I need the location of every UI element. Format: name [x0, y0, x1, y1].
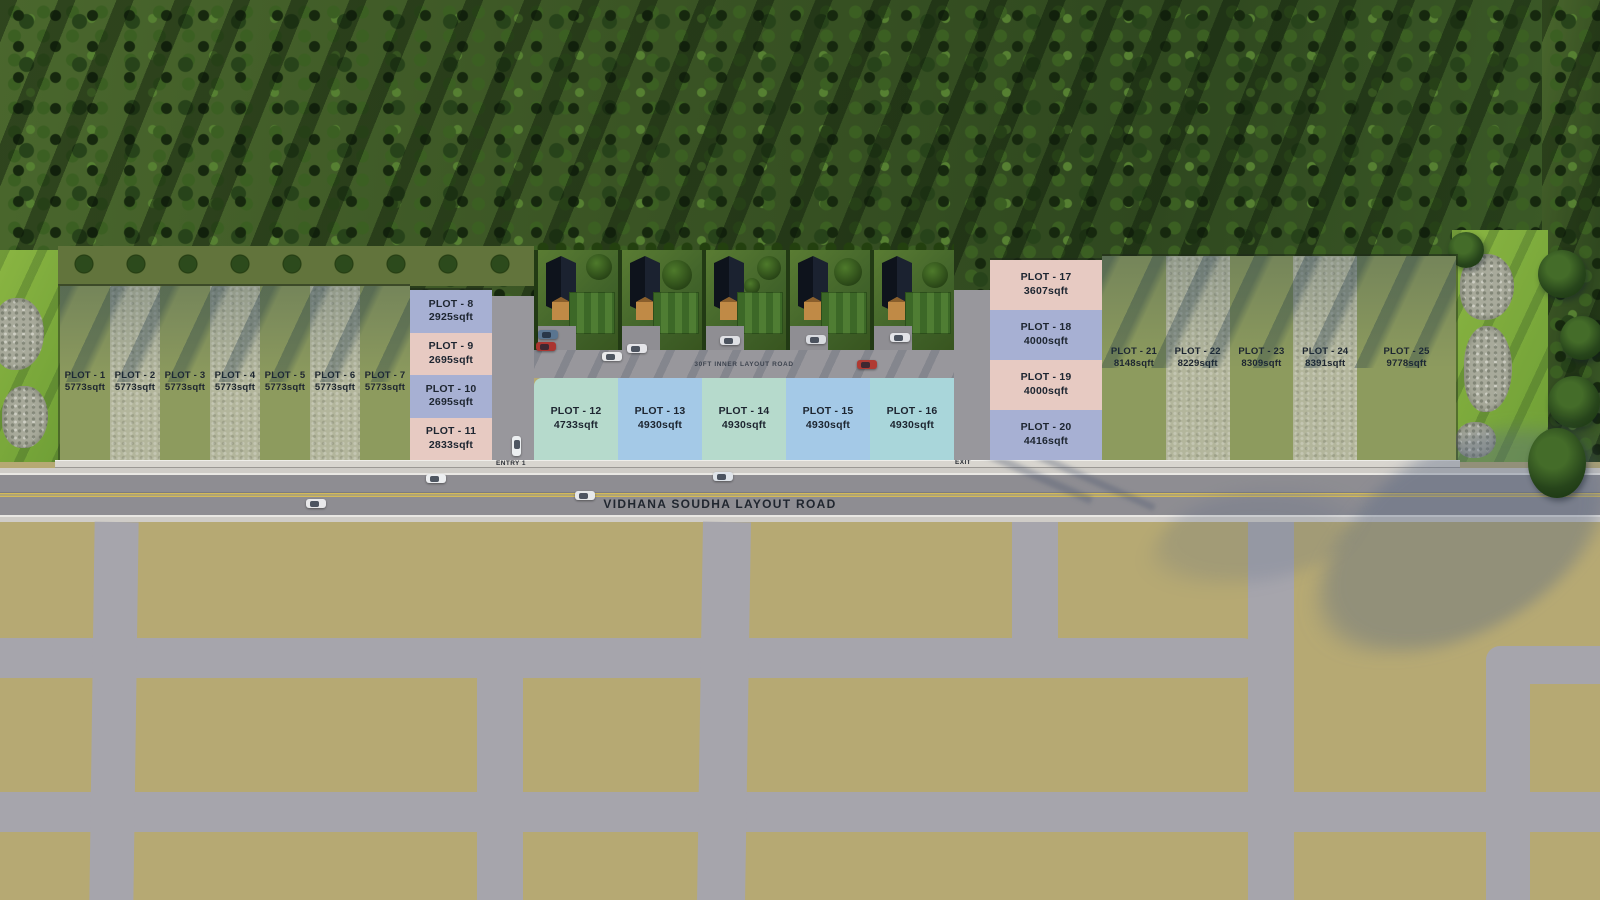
car [538, 330, 558, 339]
plot-4: PLOT - 45773sqft [210, 286, 260, 460]
plot-22: PLOT - 228229sqft [1166, 256, 1230, 460]
plots-1-7-block: PLOT - 15773sqft PLOT - 25773sqft PLOT -… [58, 284, 410, 460]
tree [757, 256, 781, 280]
tree [1538, 250, 1586, 298]
car [536, 342, 556, 351]
car [512, 436, 521, 456]
car [713, 472, 733, 481]
plot-9: PLOT - 92695sqft [410, 333, 492, 376]
meadow-left [0, 250, 60, 462]
tree [834, 258, 862, 286]
plot-24: PLOT - 248391sqft [1293, 256, 1357, 460]
entry-label: ENTRY 1 [496, 460, 526, 467]
inner-layout-road: 30FT INNER LAYOUT ROAD [534, 350, 954, 378]
car [806, 335, 826, 344]
plot-16: PLOT - 164930sqft [870, 378, 954, 460]
plot-18: PLOT - 184000sqft [990, 310, 1102, 360]
main-road-label: VIDHANA SOUDHA LAYOUT ROAD [560, 497, 880, 511]
car [426, 474, 446, 483]
tree [662, 260, 692, 290]
plot-7: PLOT - 75773sqft [360, 286, 410, 460]
plot-1: PLOT - 15773sqft [60, 286, 110, 460]
street-vertical [477, 676, 523, 900]
plot-8: PLOT - 82925sqft [410, 290, 492, 333]
plot-2: PLOT - 25773sqft [110, 286, 160, 460]
plot-10: PLOT - 102695sqft [410, 375, 492, 418]
sidewalk [55, 460, 1460, 468]
exit-road [954, 290, 990, 460]
house-lot [870, 250, 954, 350]
plots-12-16-block: PLOT - 124733sqft PLOT - 134930sqft PLOT… [534, 378, 954, 460]
plot-20: PLOT - 204416sqft [990, 410, 1102, 460]
car [575, 491, 595, 500]
plot-11: PLOT - 112833sqft [410, 418, 492, 461]
street-vertical [1486, 646, 1530, 900]
tree [922, 262, 948, 288]
plot-12: PLOT - 124733sqft [534, 378, 618, 460]
house-lot [786, 250, 870, 350]
plot-6: PLOT - 65773sqft [310, 286, 360, 460]
plot-19: PLOT - 194000sqft [990, 360, 1102, 410]
gravel-patch [2, 386, 48, 448]
site-layout-render: VIDHANA SOUDHA LAYOUT ROAD ENTRY 1 EXIT … [0, 0, 1600, 900]
street-horizontal [1522, 646, 1600, 684]
plot-14: PLOT - 144930sqft [702, 378, 786, 460]
street-vertical [89, 522, 138, 900]
exit-label: EXIT [955, 459, 971, 466]
tree [1548, 376, 1600, 428]
plot-25: PLOT - 259778sqft [1357, 256, 1456, 460]
tree [1560, 316, 1600, 360]
plot-3: PLOT - 35773sqft [160, 286, 210, 460]
street-horizontal [0, 638, 1262, 678]
plot-13: PLOT - 134930sqft [618, 378, 702, 460]
plot-21: PLOT - 218148sqft [1102, 256, 1166, 460]
plot-15: PLOT - 154930sqft [786, 378, 870, 460]
house-lot [702, 250, 786, 350]
tree [1528, 428, 1586, 498]
inner-road-label: 30FT INNER LAYOUT ROAD [694, 361, 793, 368]
plots-17-20-block: PLOT - 173607sqft PLOT - 184000sqft PLOT… [990, 258, 1102, 460]
car [890, 333, 910, 342]
plot-17: PLOT - 173607sqft [990, 260, 1102, 310]
gravel-patch [0, 298, 44, 370]
plots-8-11-block: PLOT - 82925sqft PLOT - 92695sqft PLOT -… [410, 288, 492, 460]
plots-21-25-block: PLOT - 218148sqft PLOT - 228229sqft PLOT… [1102, 254, 1458, 460]
street-vertical [697, 522, 751, 900]
plot-23: PLOT - 238309sqft [1230, 256, 1294, 460]
hedge-row [58, 246, 534, 286]
plot-5: PLOT - 55773sqft [260, 286, 310, 460]
car [627, 344, 647, 353]
car [306, 499, 326, 508]
car [720, 336, 740, 345]
house-lot [618, 250, 702, 350]
gravel-patch [1464, 326, 1512, 412]
street-horizontal [0, 792, 1600, 832]
tree [586, 254, 612, 280]
car [602, 352, 622, 361]
car [857, 360, 877, 369]
street-vertical [1012, 522, 1058, 678]
